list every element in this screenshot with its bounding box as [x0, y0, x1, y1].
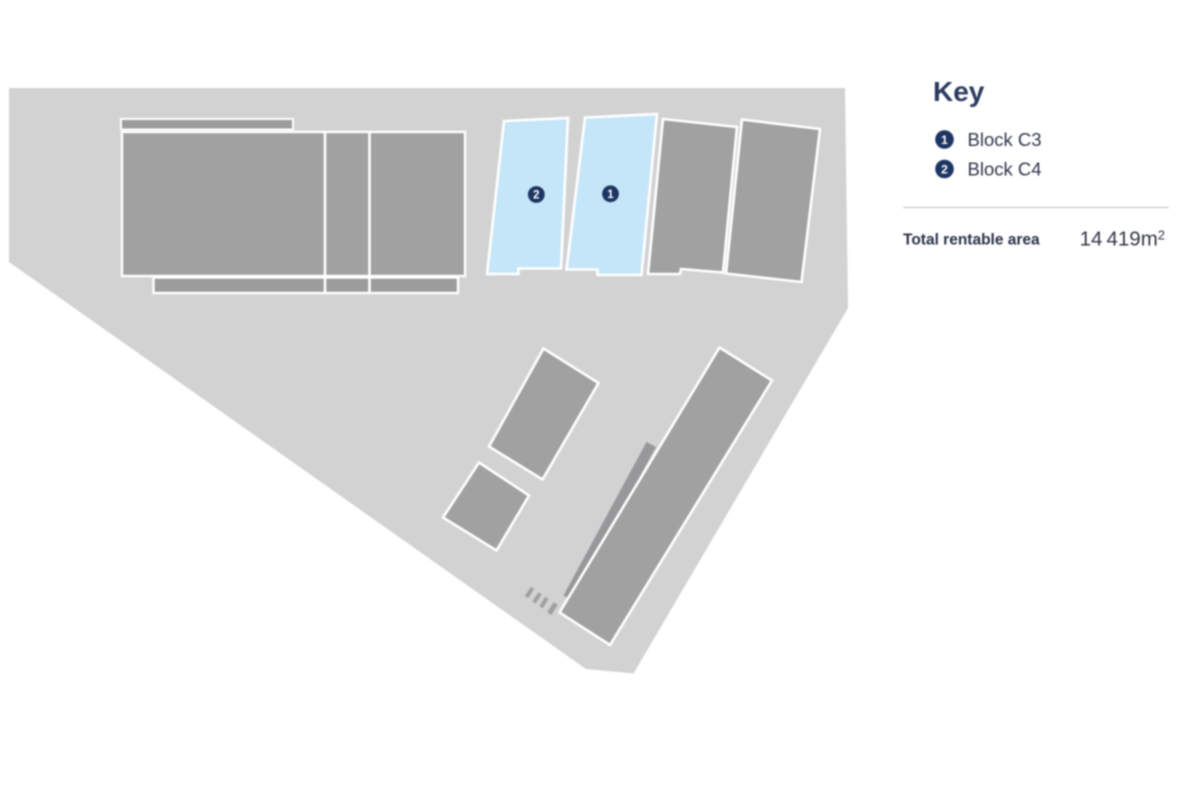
svg-text:Block C3: Block C3 [968, 129, 1042, 150]
svg-text:Block C4: Block C4 [968, 159, 1042, 180]
svg-text:1: 1 [941, 133, 948, 147]
svg-text:1: 1 [607, 189, 614, 201]
svg-text:Total rentable area: Total rentable area [903, 232, 1040, 249]
svg-text:2: 2 [941, 163, 948, 177]
svg-text:Key: Key [933, 76, 985, 107]
svg-text:14 419m2: 14 419m2 [1080, 228, 1165, 251]
svg-text:2: 2 [533, 190, 539, 202]
